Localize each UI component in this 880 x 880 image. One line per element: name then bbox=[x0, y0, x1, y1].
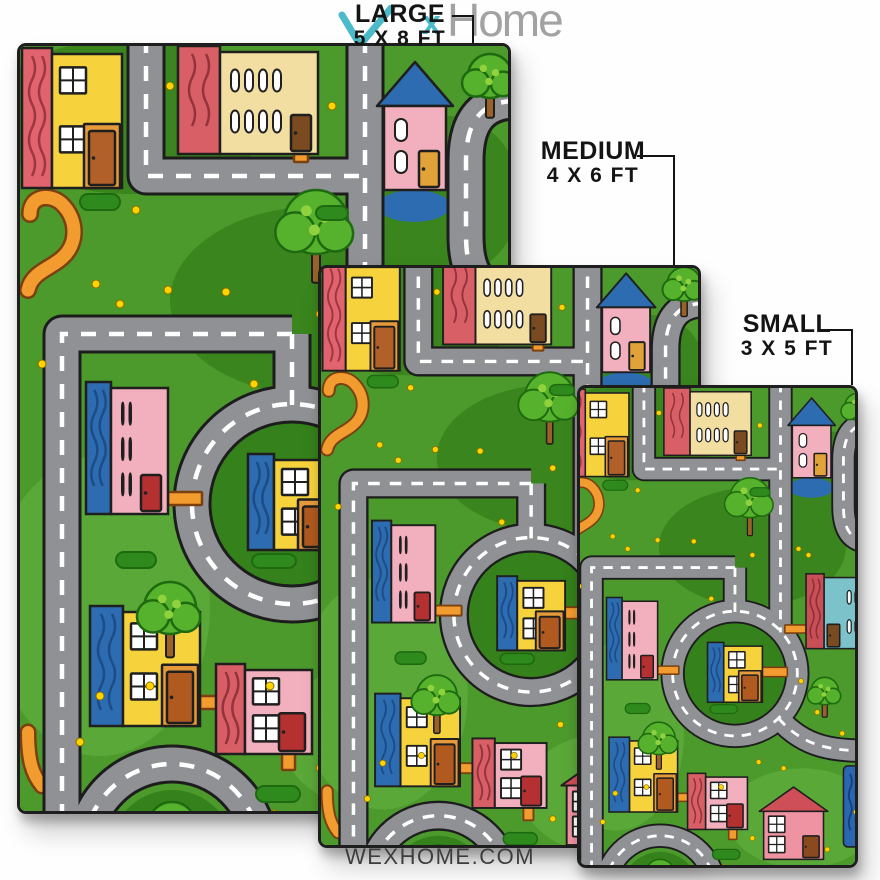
website-url: WEXHOME.COM bbox=[0, 844, 880, 870]
product-size-comparison-image: x Home LARGE 5 X 8 FT MEDIUM 4 X 6 FT SM… bbox=[0, 0, 880, 880]
size-label-large: LARGE 5 X 8 FT bbox=[336, 2, 464, 49]
size-label-small: SMALL 3 X 5 FT bbox=[737, 312, 837, 359]
size-label-medium: MEDIUM 4 X 6 FT bbox=[540, 139, 646, 186]
rug-small bbox=[577, 385, 858, 868]
pointer-line-large-vertical bbox=[472, 15, 474, 43]
size-name-small: SMALL bbox=[737, 312, 837, 338]
pointer-line-large-horizontal bbox=[452, 15, 474, 17]
size-dimensions-medium: 4 X 6 FT bbox=[540, 165, 646, 186]
pointer-line-small-horizontal bbox=[818, 329, 853, 331]
size-name-medium: MEDIUM bbox=[540, 139, 646, 165]
size-dimensions-small: 3 X 5 FT bbox=[737, 338, 837, 359]
pointer-line-small-vertical bbox=[851, 329, 853, 385]
pointer-line-medium-vertical bbox=[673, 155, 675, 265]
rug-small-artwork bbox=[580, 388, 855, 865]
logo-home-text: Home bbox=[447, 0, 562, 47]
pointer-line-medium-horizontal bbox=[637, 155, 675, 157]
size-name-large: LARGE bbox=[336, 2, 464, 28]
size-dimensions-large: 5 X 8 FT bbox=[336, 28, 464, 49]
